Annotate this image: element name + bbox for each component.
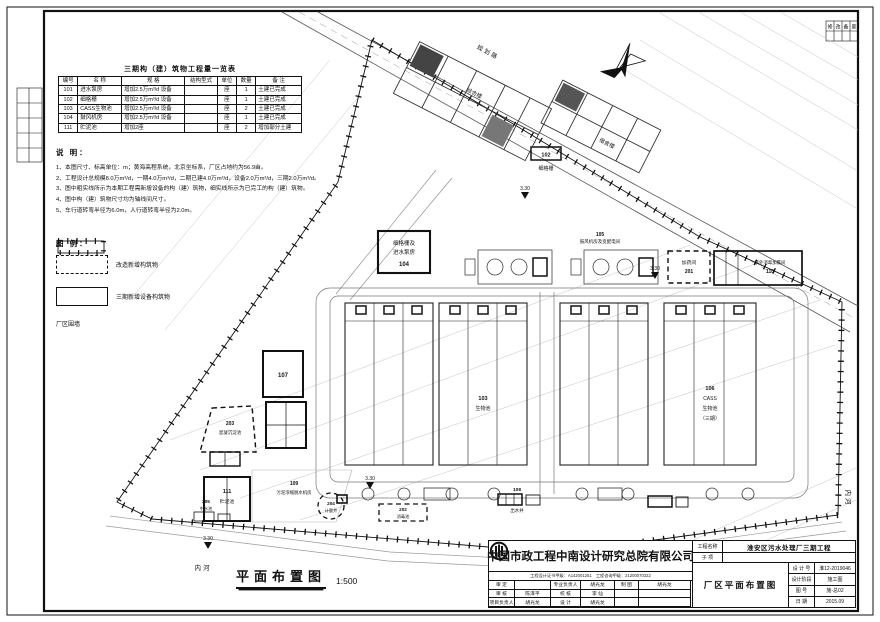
sign-value [639,590,691,599]
structure-205-label: 中水池 [200,505,213,512]
col-header: 结构型式 [185,77,217,86]
sign-label: 制 图 [615,581,639,590]
table-row: 102细格栅增加2.5万m³/d 设备座1土建已完成 [59,95,302,104]
river-label: 内河 [195,563,212,572]
structure-106-label: CASS [703,396,717,402]
sign-label: 专业负责人 [551,581,581,590]
table-header-row: 编号 名 称 规 格 结构型式 单位 数量 备 注 [59,77,302,86]
road-label: 规划路 [475,43,500,61]
quantity-table-title: 三期构（建）筑物工程量一览表 [58,66,302,74]
structure-104-label: 进水泵房 [393,248,416,256]
drawing-sheet: 修 改 备 案 规划路 综合楼 宿舍楼 102 细格栅 细格栅及 进水泵房 10… [0,0,880,622]
structure-203-box [200,406,256,466]
structure-108-num: 108 [513,487,521,493]
legend-item-label: 厂区围墙 [56,319,80,328]
structure-202-num: 202 [399,507,407,512]
note-item: 5、车行道转弯半径为6.0m，人行道转弯半径为2.0m。 [56,206,356,217]
revision-cell: 案 [851,24,856,31]
structure-109-label: 污泥浓缩脱水机房 [276,489,312,496]
table-row: 111贮泥池增加2座座2增加部分土建 [59,123,302,132]
ring-road [316,288,808,498]
structure-111-box [204,477,250,521]
structure-106-label: 生物池 [702,405,717,412]
sign-value [515,581,551,590]
note-item: 1、本图尺寸、标高单位：m；黄海高程系统，北京坐标系，厂区占地约为56.9亩。 [56,163,356,174]
field-value: 淮12-2019046 [815,563,855,573]
certificate-line: 工程设计证书甲级：A142001251 工程咨询甲级：21200070322 [489,572,692,581]
drawing-title: 厂区平面布置图 [693,563,789,607]
note-item: 3、图中粗实线所示为本期工程需新增设备的构（建）筑物，细实线所示为已完工的构（建… [56,184,356,195]
legend-item: 改造新增构筑物 [56,255,276,274]
structure-107-num: 107 [278,373,289,379]
legend-item: 三期新增设备构筑物 [56,287,276,306]
sign-label [615,590,639,599]
col-header: 备 注 [256,77,302,86]
elevation-value: 3.30 [650,266,660,272]
revision-cell: 修 [827,24,832,31]
notes-block: 说 明： 1、本图尺寸、标高单位：m；黄海高程系统，北京坐标系，厂区占地约为56… [56,146,356,216]
sign-value: 胡光龙 [581,598,615,607]
structure-102-num: 102 [541,153,550,159]
structure-107-box [263,351,306,448]
field-label: 日 期 [789,597,815,607]
sign-label: 审 核 [489,590,515,599]
title-block: 中国市政工程中南设计研究总院有限公司 工程设计证书甲级：A142001251 工… [488,540,856,608]
sign-value: 胡光龙 [515,598,551,607]
legend-block: 图 例： 改造新增构筑物 三期新增设备构筑物 厂区围墙 [56,238,276,341]
structure-104-label: 细格栅及 [393,239,416,247]
structure-105-num: 105 [596,232,605,238]
info-field: 日 期 2015.09 [789,597,855,607]
solid-box-symbol [56,287,108,306]
subitem-row: 子 项 [693,553,855,563]
info-field: 设 计 号 淮12-2019046 [789,563,855,574]
note-item: 2、工程设计总规模8.0万m³/d，一期4.0万m³/d，二期已建4.0万m³/… [56,174,356,185]
plan-caption-scale: 1:500 [336,576,357,589]
info-fields: 设 计 号 淮12-2019046 设计阶段 施工图 图 号 施-总02 日 期… [789,563,855,607]
structure-202-label: 消毒池 [397,513,410,520]
company-name: 中国市政工程中南设计研究总院有限公司 [487,548,694,564]
building-complex-2 [541,80,661,173]
field-value: 施工图 [815,574,855,584]
info-field: 设计阶段 施工图 [789,574,855,585]
plan-caption-title: 平面布置图 [236,566,326,589]
field-label: 设计阶段 [789,574,815,584]
project-row: 工程名称 淮安区污水处理厂三期工程 [693,541,855,553]
sign-value [639,598,691,607]
field-value: 施-总02 [815,586,855,596]
subitem-label: 子 项 [693,553,723,563]
structure-102-label: 细格栅 [538,165,553,172]
structure-203-label: 混凝沉淀池 [219,429,242,436]
subitem-value [723,553,855,563]
structure-201-box [668,251,710,283]
col-header: 单位 [217,77,236,86]
note-item: 4、图中构（建）筑物尺寸均为轴线间尺寸。 [56,195,356,206]
project-label: 工程名称 [693,541,723,553]
structure-111-num: 111 [223,489,232,495]
notes-heading: 说 明： [56,146,356,160]
col-header: 规 格 [122,77,185,86]
structure-109-num: 109 [290,481,299,487]
structure-201-label: 加药间 [682,259,697,266]
building-complex-1 [393,42,551,161]
structure-103-num: 103 [478,396,487,402]
dashed-box-symbol [56,255,108,274]
structure-110-label: 紫外消毒加氯间 [755,259,786,266]
river-label: 内河 [844,490,853,507]
structure-105-equipment [465,250,658,284]
elevation-value: 3.30 [203,536,213,542]
structure-203-num: 203 [226,421,235,427]
sign-value: 陈泽平 [515,590,551,599]
signature-grid: 审 定 专业负责人 胡光龙 制 图 胡光龙 审 核 陈泽平 校 核 李 仙 项目… [489,581,692,607]
table-row: 101进水泵房增加2.5万m³/d 设备座1土建已完成 [59,86,302,95]
structure-205-num: 205 [202,499,210,504]
company-row: 中国市政工程中南设计研究总院有限公司 [489,541,692,572]
elevation-value: 3.30 [520,186,530,192]
col-header: 编号 [59,77,78,86]
project-name: 淮安区污水处理厂三期工程 [723,541,855,553]
binding-strip [17,88,42,162]
elevation-value: 3.30 [365,476,375,482]
sign-label: 审 定 [489,581,515,590]
sign-value: 李 仙 [581,590,615,599]
structure-106-label: （三期） [700,416,720,422]
structure-205-box [194,512,230,521]
sign-label: 项目负责人 [489,598,515,607]
legend-item-label: 三期新增设备构筑物 [116,292,170,301]
structure-108-box [498,494,688,507]
table-row: 103CASS生物池增加2.5万m³/d 设备座2土建已完成 [59,104,302,113]
structure-105-label: 鼓风机房及变配电间 [580,238,621,245]
field-label: 图 号 [789,586,815,596]
structure-108-label: 出水井 [510,507,524,514]
cass-tanks [345,303,756,465]
sign-label: 设 计 [551,598,581,607]
quantity-table: 三期构（建）筑物工程量一览表 编号 名 称 规 格 结构型式 单位 数量 备 注… [58,66,302,133]
structure-204-label: 计量井 [325,507,338,514]
sign-label [615,598,639,607]
sign-value: 胡光龙 [639,581,691,590]
structure-204-num: 204 [327,501,335,506]
info-field: 图 号 施-总02 [789,586,855,597]
structure-111-label: 贮泥池 [220,498,235,505]
sign-label: 校 核 [551,590,581,599]
revision-cell: 改 [835,24,840,31]
legend-item-label: 改造新增构筑物 [116,260,158,269]
col-header: 名 称 [78,77,122,86]
structure-103-label: 生物池 [475,405,490,412]
legend-item: 厂区围墙 [56,319,276,328]
building-2-label: 宿舍楼 [598,136,617,151]
field-value: 2015.09 [815,597,855,607]
col-header: 数量 [237,77,256,86]
revision-cell: 备 [843,24,848,31]
structure-110-num: 110 [766,269,774,275]
field-label: 设 计 号 [789,563,815,573]
structure-106-num: 106 [705,386,714,392]
sign-value: 胡光龙 [581,581,615,590]
planned-road [282,12,858,332]
structure-104-num: 104 [399,262,410,268]
fence-symbol [56,238,106,255]
north-arrow-icon [599,37,649,86]
structure-201-num: 201 [685,269,694,275]
plan-caption: 平面布置图 1:500 [236,566,357,589]
table-row: 104鼓风机房增加2.5万m³/d 设备座1土建已完成 [59,114,302,123]
company-logo [489,541,509,561]
